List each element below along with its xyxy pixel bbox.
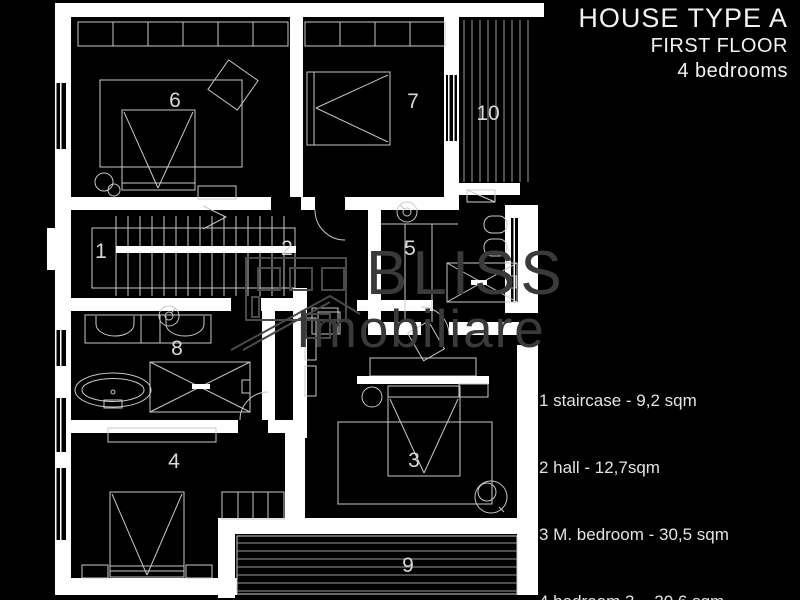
wall-stair-bottom-b — [261, 298, 293, 311]
wall-bottom-mid — [218, 518, 518, 534]
wall-stair-bottom — [71, 298, 231, 311]
wall-room3-top — [357, 300, 433, 311]
title-bedrooms: 4 bedrooms — [578, 59, 788, 83]
legend-item-4: 4 bedroom 3 - 20,6 sqm — [539, 591, 729, 600]
room-number-10: 10 — [476, 102, 499, 125]
room-number-7: 7 — [407, 90, 419, 113]
wall-room8-room4-b — [268, 420, 305, 433]
wall-room8-room4-a — [71, 420, 238, 433]
window-room6 — [52, 83, 66, 149]
room-number-9: 9 — [402, 554, 414, 577]
title-house-type: HOUSE TYPE A — [578, 2, 788, 34]
title-floor: FIRST FLOOR — [578, 34, 788, 58]
room-number-2: 2 — [281, 237, 293, 260]
room-number-4: 4 — [168, 450, 180, 473]
window-room4 — [52, 468, 66, 540]
title-block: HOUSE TYPE A FIRST FLOOR 4 bedrooms — [578, 2, 788, 83]
wall-right — [517, 345, 538, 595]
wall-room5-bottom-b — [449, 322, 519, 335]
stairs-handrail — [116, 246, 296, 253]
room-number-3: 3 — [408, 449, 420, 472]
wall-mid-a — [55, 197, 271, 210]
room-legend: 1 staircase - 9,2 sqm 2 hall - 12,7sqm 3… — [539, 345, 729, 600]
wall-room5-bottom-a — [368, 322, 421, 335]
wall-div-room6-room7 — [290, 17, 303, 197]
legend-item-1: 1 staircase - 9,2 sqm — [539, 390, 729, 412]
wall-room5-bay — [505, 205, 538, 313]
window-left-lower — [52, 398, 66, 452]
wall-room4-right — [285, 433, 305, 520]
wall-loggia2-bottom — [444, 183, 520, 195]
legend-item-2: 2 hall - 12,7sqm — [539, 457, 729, 479]
wall-top — [57, 3, 544, 17]
room-number-6: 6 — [169, 89, 181, 112]
window-room7-loggia — [446, 75, 457, 141]
wall-loggia1-left — [218, 518, 235, 598]
wall-mid-b — [301, 197, 315, 210]
floor-plan-page: 1 2 3 4 5 6 7 8 9 10 BLISS Imobiliare HO… — [0, 0, 800, 600]
legend-item-3: 3 M. bedroom - 30,5 sqm — [539, 524, 729, 546]
headboard-room3 — [357, 376, 489, 384]
room-number-5: 5 — [404, 237, 416, 260]
window-room8 — [52, 330, 66, 366]
wall-bottom-left — [55, 578, 237, 595]
wall-left-sill — [47, 228, 56, 270]
wall-hall-room5 — [368, 210, 381, 335]
room-number-1: 1 — [95, 240, 107, 263]
room-number-8: 8 — [171, 337, 183, 360]
